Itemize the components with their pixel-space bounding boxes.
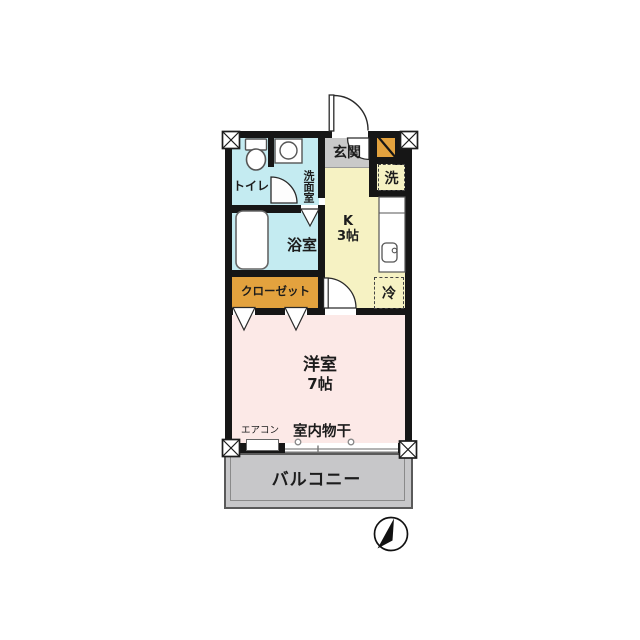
pillar-icon: [401, 132, 418, 149]
bath-folding-door-icon: [301, 209, 319, 226]
western-room-label: 洋室 7帖: [270, 356, 370, 393]
toilet-label: トイレ: [230, 180, 272, 194]
pillar-icon: [223, 440, 240, 457]
kitchen-door-icon: [324, 278, 356, 308]
shoe-cabinet-diagonal-icon: [374, 132, 397, 159]
western-room-size: 7帖: [270, 376, 370, 393]
air-conditioner-label: エアコン: [240, 426, 280, 437]
pillar-icon: [400, 441, 417, 458]
kitchen-label: K 3帖: [330, 215, 366, 245]
sliding-window-icon: [285, 446, 398, 453]
entrance-door-swing-icon: [329, 95, 368, 131]
faucet-icon: [392, 248, 397, 253]
washbasin-icon: [275, 139, 302, 163]
floor-plan: 洗 冷 玄関 トイレ 洗面室 浴室 K 3帖 クローゼット 洋室 7帖 エアコン…: [0, 0, 640, 640]
kitchen-name: K: [330, 215, 366, 230]
kitchen-counter: [379, 197, 405, 272]
refrigerator-label: 冷: [382, 283, 396, 303]
air-conditioner-box: [246, 439, 279, 451]
north-arrow-icon: [375, 518, 408, 551]
refrigerator-box: 冷: [374, 277, 404, 309]
balcony-label: バルコニー: [224, 471, 409, 491]
western-room-name: 洋室: [270, 356, 370, 376]
indoor-laundry-label: 室内物干: [282, 424, 362, 441]
pillar-icon: [223, 132, 240, 149]
closet-label: クローゼット: [232, 285, 319, 298]
toilet-door-icon: [271, 177, 297, 203]
closet-folding-door-icon: [233, 308, 255, 331]
washroom-label: 洗面室: [302, 163, 315, 209]
washing-machine-label: 洗: [385, 168, 399, 188]
washing-machine-box: 洗: [378, 164, 405, 191]
entrance-label: 玄関: [325, 145, 369, 161]
toilet-icon: [246, 139, 267, 170]
bathroom-label: 浴室: [282, 237, 322, 254]
kitchen-size: 3帖: [330, 230, 366, 245]
closet-folding-door-icon: [285, 308, 307, 331]
bathtub-icon: [236, 211, 268, 269]
floor-plan-symbols: [0, 0, 640, 640]
